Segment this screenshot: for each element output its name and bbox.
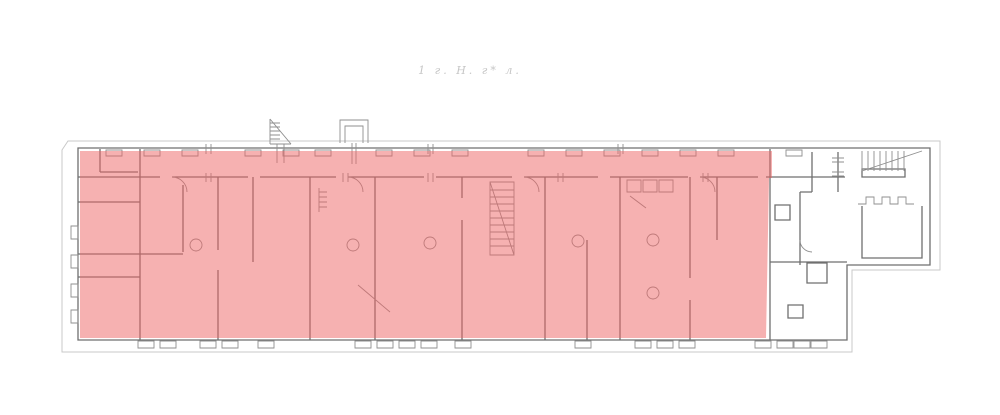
bottom-window-sills [138, 341, 827, 348]
floor-plan: 1 г. Н. г* л. [0, 0, 1000, 415]
floor-plan-canvas: 1 г. Н. г* л. [0, 0, 1000, 415]
staircase-right [862, 151, 922, 171]
highlighted-region[interactable] [80, 151, 772, 338]
annotation-text: 1 г. Н. г* л. [418, 64, 522, 77]
left-window-sills [71, 226, 78, 323]
right-room-fixtures [788, 263, 827, 318]
radiator-sawtooth [858, 197, 914, 204]
